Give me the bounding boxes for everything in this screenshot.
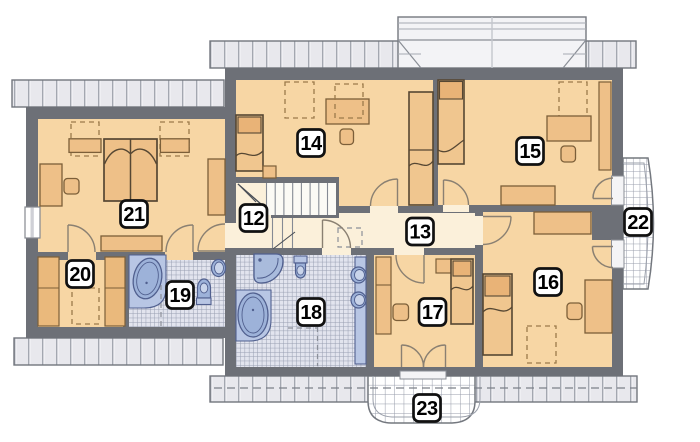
svg-text:15: 15 <box>519 141 541 163</box>
svg-text:23: 23 <box>416 398 438 420</box>
svg-text:22: 22 <box>627 212 649 234</box>
svg-text:12: 12 <box>243 208 265 230</box>
svg-text:17: 17 <box>422 302 444 324</box>
svg-text:18: 18 <box>300 302 322 324</box>
svg-text:20: 20 <box>69 264 91 286</box>
svg-text:16: 16 <box>537 272 559 294</box>
svg-text:14: 14 <box>300 133 323 155</box>
svg-text:13: 13 <box>409 222 431 244</box>
svg-text:21: 21 <box>123 204 145 226</box>
svg-text:19: 19 <box>169 285 191 307</box>
